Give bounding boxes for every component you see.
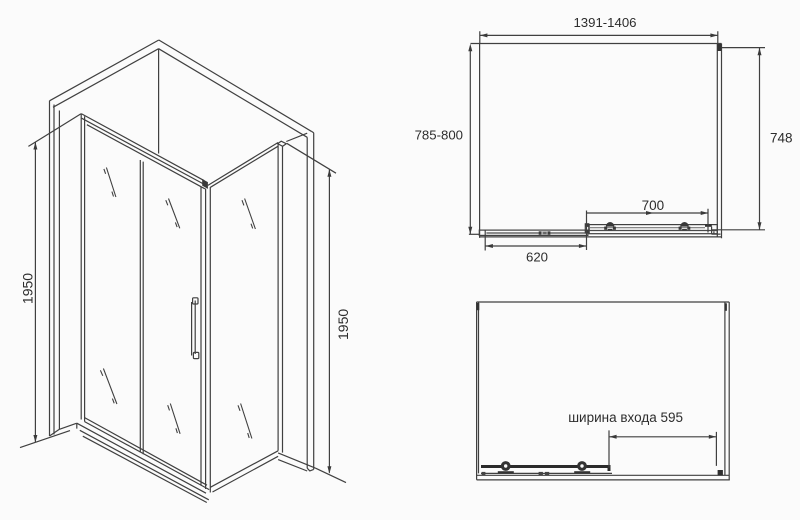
svg-text:785-800: 785-800: [415, 128, 463, 143]
svg-text:1950: 1950: [20, 273, 36, 304]
svg-text:1950: 1950: [335, 309, 351, 340]
svg-text:700: 700: [642, 198, 665, 213]
svg-text:ширина входа 595: ширина входа 595: [568, 410, 683, 425]
svg-text:748: 748: [770, 130, 793, 145]
svg-text:1391-1406: 1391-1406: [573, 15, 636, 30]
svg-text:620: 620: [526, 250, 548, 265]
